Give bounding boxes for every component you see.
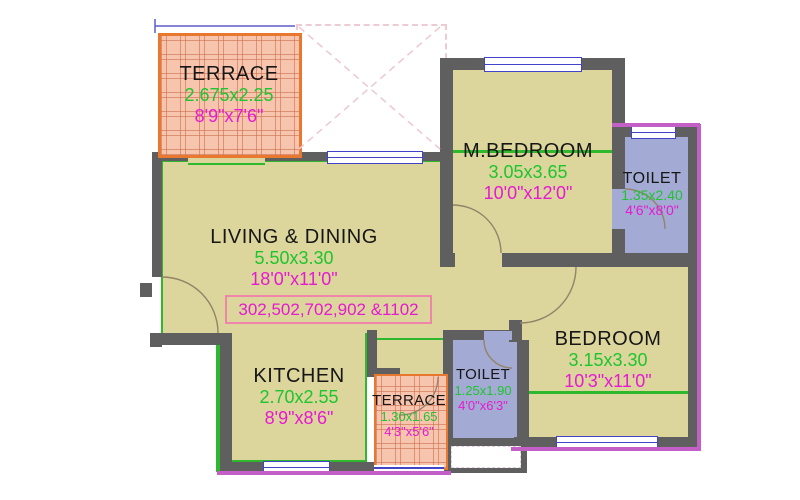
mbedroom-door-arc (453, 205, 501, 253)
room-name: TOILET (454, 366, 511, 383)
room-dim-ft: 10'0"x12'0" (463, 183, 593, 204)
room-dim-m: 1.30x1.65 (372, 409, 446, 424)
room-dim-ft: 8'9"x7'6" (179, 106, 278, 127)
unit-numbers-box: 302,502,702,902 &1102 (225, 295, 432, 324)
room-dim-m: 2.70x2.55 (253, 387, 344, 408)
room-dim-ft: 4'3"x5'6" (372, 424, 446, 439)
room-name: KITCHEN (253, 366, 344, 387)
label-kitchen: KITCHEN 2.70x2.55 8'9"x8'6" (253, 366, 344, 429)
room-dim-m: 5.50x3.30 (210, 248, 378, 269)
room-dim-ft: 4'6"x8'0" (621, 203, 683, 218)
room-dim-m: 1.35x2.40 (621, 188, 683, 203)
label-bedroom: BEDROOM 3.15x3.30 10'3"x11'0" (555, 329, 662, 392)
room-name: TOILET (621, 170, 683, 188)
room-dim-ft: 8'9"x8'6" (253, 408, 344, 429)
label-master-bedroom: M.BEDROOM 3.05x3.65 10'0"x12'0" (463, 141, 593, 204)
floor-plan: TERRACE 2.675x2.25 8'9"x7'6" LIVING & DI… (0, 0, 800, 500)
room-name: M.BEDROOM (463, 141, 593, 162)
room-dim-m: 1.25x1.90 (454, 383, 511, 398)
label-terrace-bottom: TERRACE 1.30x1.65 4'3"x5'6" (372, 392, 446, 439)
room-name: TERRACE (179, 64, 278, 85)
bedroom-door-arc (520, 267, 576, 323)
room-dim-m: 3.15x3.30 (555, 350, 662, 371)
room-name: LIVING & DINING (210, 227, 378, 248)
room-dim-m: 3.05x3.65 (463, 162, 593, 183)
label-toilet-bottom: TOILET 1.25x1.90 4'0"x6'3" (454, 366, 511, 413)
room-dim-ft: 18'0"x11'0" (210, 269, 378, 290)
room-name: BEDROOM (555, 329, 662, 350)
unit-numbers-text: 302,502,702,902 &1102 (238, 300, 418, 320)
label-terrace-top: TERRACE 2.675x2.25 8'9"x7'6" (179, 64, 278, 127)
room-dim-m: 2.675x2.25 (179, 85, 278, 106)
label-living-dining: LIVING & DINING 5.50x3.30 18'0"x11'0" (210, 227, 378, 290)
toilet-bottom-door-arc (484, 340, 512, 368)
room-dim-ft: 10'3"x11'0" (555, 371, 662, 392)
label-toilet-top: TOILET 1.35x2.40 4'6"x8'0" (621, 170, 683, 218)
room-dim-ft: 4'0"x6'3" (454, 398, 511, 413)
room-name: TERRACE (372, 392, 446, 409)
